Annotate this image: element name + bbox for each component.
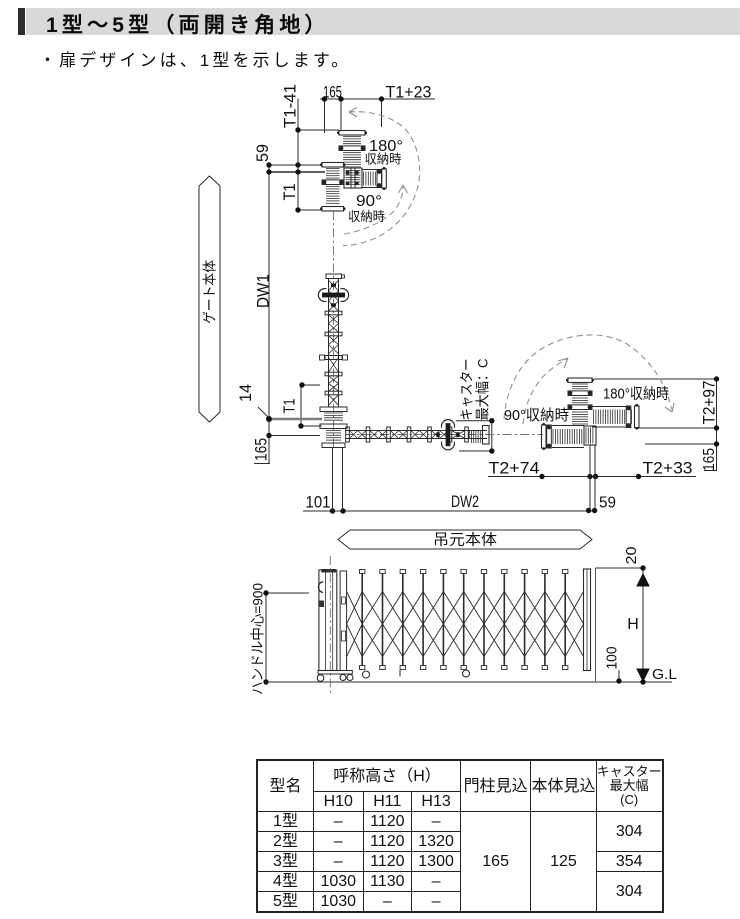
svg-text:100: 100 <box>604 647 621 670</box>
svg-text:T1+23: T1+23 <box>386 83 432 102</box>
svg-text:59: 59 <box>599 495 616 512</box>
svg-text:180°収納時: 180°収納時 <box>603 386 669 403</box>
svg-text:20: 20 <box>623 547 640 565</box>
svg-text:T2+97: T2+97 <box>700 381 719 425</box>
svg-text:G.L: G.L <box>652 666 677 683</box>
svg-text:ゲート本体: ゲート本体 <box>202 260 218 324</box>
svg-text:吊元本体: 吊元本体 <box>433 532 497 549</box>
svg-text:最大幅：C: 最大幅：C <box>475 359 491 421</box>
svg-text:収納時: 収納時 <box>365 152 402 167</box>
svg-text:165: 165 <box>701 448 718 471</box>
svg-text:DW2: DW2 <box>451 492 479 511</box>
svg-text:T2+74: T2+74 <box>489 459 540 478</box>
svg-text:T1-41: T1-41 <box>281 84 300 128</box>
svg-text:H: H <box>627 616 639 633</box>
svg-text:ハンドル中心=900: ハンドル中心=900 <box>250 583 266 695</box>
svg-text:T1: T1 <box>280 184 299 201</box>
svg-text:収納時: 収納時 <box>348 209 385 224</box>
svg-text:59: 59 <box>253 144 272 162</box>
svg-text:90°: 90° <box>356 193 382 210</box>
svg-text:165: 165 <box>252 438 271 461</box>
svg-text:キャスター: キャスター <box>459 359 475 421</box>
svg-text:14: 14 <box>236 384 255 402</box>
svg-text:90°収納時: 90°収納時 <box>504 407 569 424</box>
svg-text:DW1: DW1 <box>254 274 273 308</box>
svg-text:101: 101 <box>306 493 331 512</box>
svg-text:165: 165 <box>323 83 342 102</box>
svg-text:T2+33: T2+33 <box>643 459 693 478</box>
svg-text:T1: T1 <box>282 398 299 413</box>
